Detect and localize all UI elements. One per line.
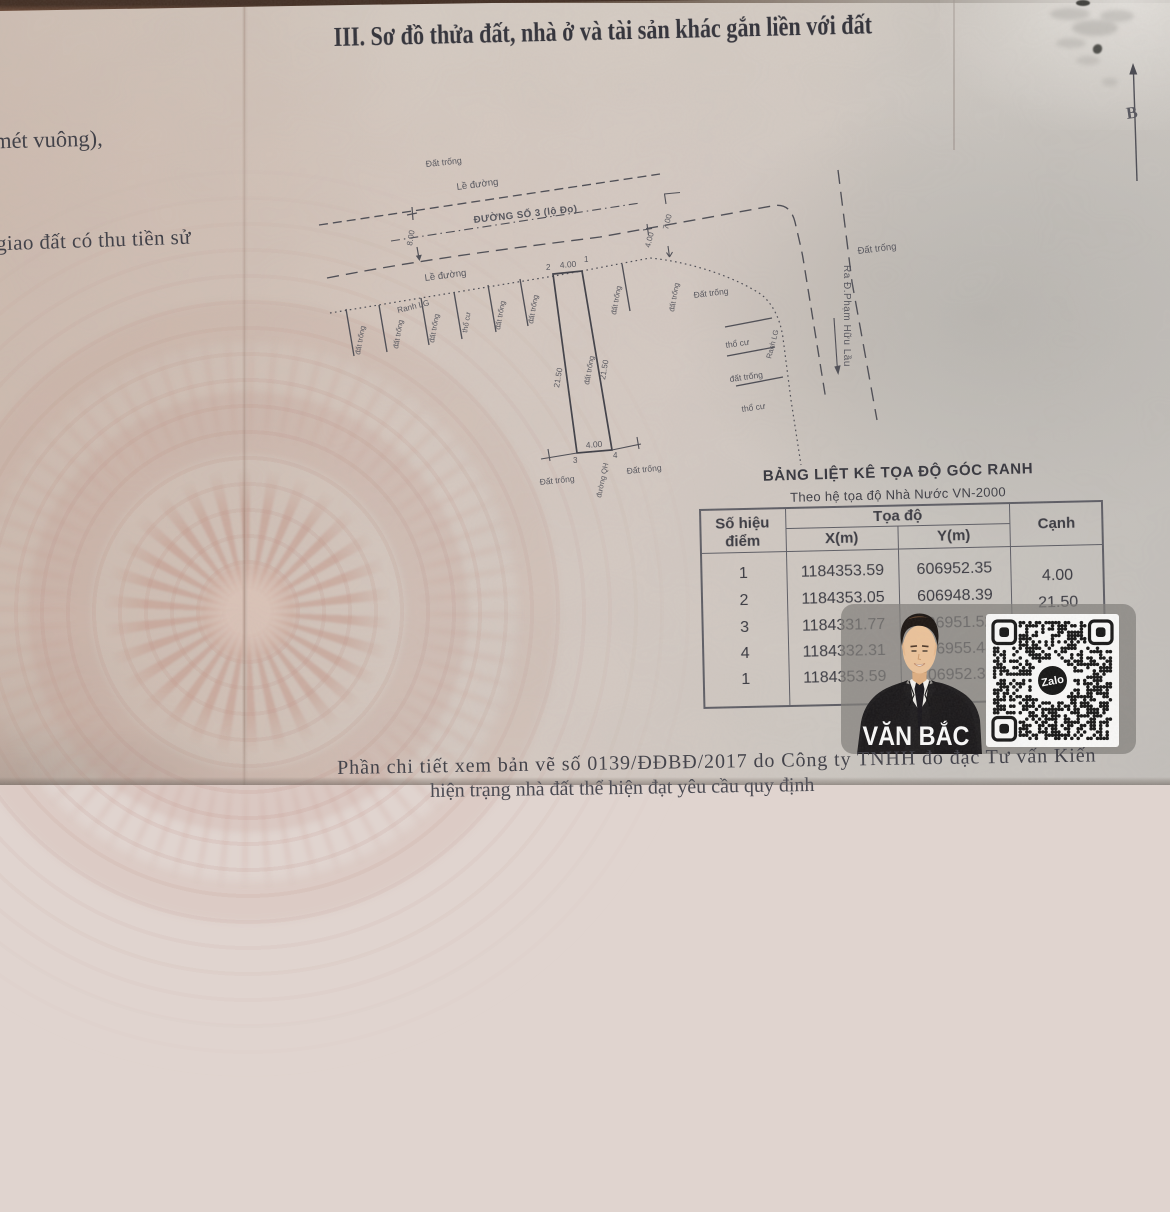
svg-text:1: 1 — [584, 255, 589, 264]
svg-text:đất trống: đất trống — [493, 300, 507, 330]
svg-text:Đất trống: Đất trống — [539, 473, 575, 487]
svg-text:Đất trống: Đất trống — [857, 241, 897, 257]
svg-text:đất trống: đất trống — [582, 355, 596, 385]
svg-text:Ranh LG: Ranh LG — [396, 298, 430, 315]
svg-text:đất trống: đất trống — [353, 325, 367, 355]
svg-text:đường QH: đường QH — [594, 462, 610, 498]
svg-text:thổ cư: thổ cư — [460, 311, 473, 333]
svg-text:Lề đường: Lề đường — [424, 268, 467, 284]
svg-text:4.00: 4.00 — [585, 439, 602, 450]
svg-text:Đất trống: Đất trống — [425, 155, 462, 169]
svg-text:B: B — [1125, 103, 1139, 123]
svg-text:ĐƯỜNG SỐ 3 (lộ Đo): ĐƯỜNG SỐ 3 (lộ Đo) — [473, 203, 578, 226]
svg-text:thổ cư: thổ cư — [741, 401, 767, 414]
svg-text:4.00: 4.00 — [643, 231, 656, 249]
svg-text:Đất trống: Đất trống — [626, 462, 662, 476]
svg-text:đất trống: đất trống — [427, 313, 441, 343]
svg-text:đất trống: đất trống — [667, 282, 681, 312]
svg-text:2: 2 — [546, 263, 551, 272]
svg-text:8.00: 8.00 — [405, 229, 417, 246]
svg-text:đất trống: đất trống — [609, 285, 623, 315]
svg-text:Đất trống: Đất trống — [693, 286, 729, 300]
svg-text:Ra Đ.Phạm Hữu Lầu: Ra Đ.Phạm Hữu Lầu — [841, 265, 853, 367]
svg-text:3: 3 — [573, 456, 578, 465]
svg-text:Ranh LG: Ranh LG — [764, 328, 780, 359]
svg-text:4: 4 — [613, 451, 618, 460]
svg-text:21.50: 21.50 — [598, 359, 610, 381]
svg-text:đất trống: đất trống — [391, 319, 405, 349]
svg-text:21.50: 21.50 — [552, 367, 564, 389]
svg-text:Lề đường: Lề đường — [456, 177, 499, 193]
svg-text:đất trống: đất trống — [526, 294, 540, 324]
svg-text:thổ cư: thổ cư — [725, 337, 751, 350]
svg-text:7.00: 7.00 — [661, 213, 674, 231]
svg-text:4.00: 4.00 — [559, 259, 576, 270]
